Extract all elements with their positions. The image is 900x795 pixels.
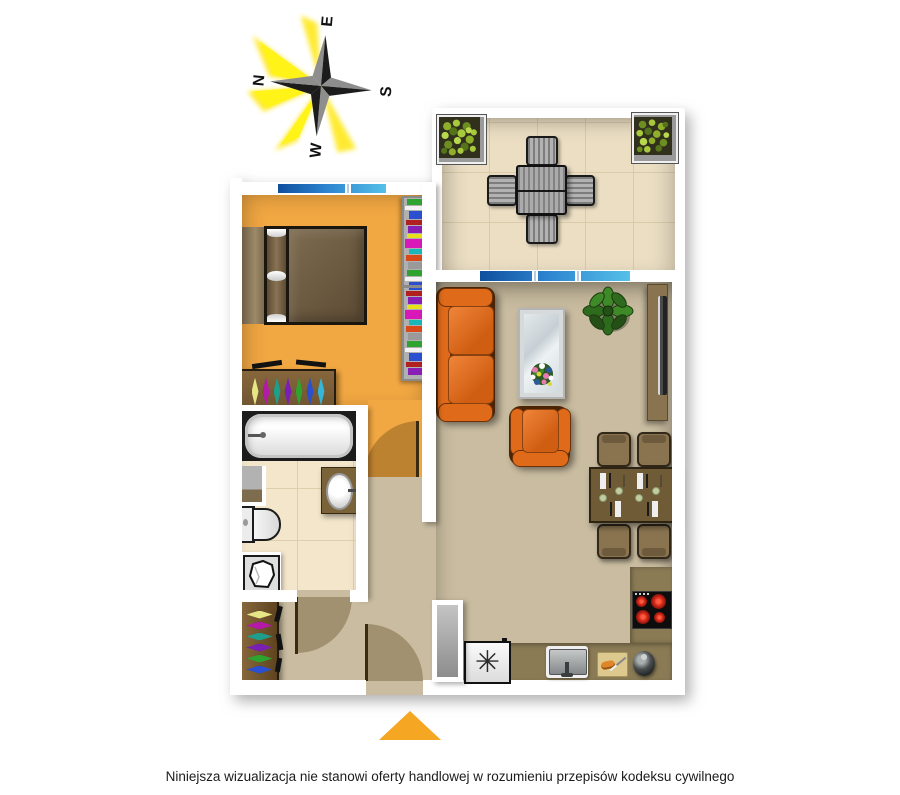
compass-star: N E S W [246,10,396,158]
bed [242,226,367,325]
clothes-hanger [247,611,273,619]
sink-vanity [321,467,360,514]
laundry-basket [240,552,281,595]
laundry-basket-inner [243,555,280,594]
cooktop-burner [636,610,650,624]
wall-right-outer [672,270,685,695]
dining-chair [637,524,671,559]
bed-headboard [242,227,264,324]
wall-bottom-left [230,680,366,695]
cooktop-controls [635,593,649,595]
window-divider [575,271,581,281]
sofa [436,287,495,421]
toilet-bowl [252,508,281,541]
wall-bathroom-right [356,405,368,597]
compass-label-east: E [319,15,337,27]
sofa-cushion [448,306,494,355]
pillow-cap [267,314,286,322]
cooktop-burner [654,612,665,623]
terrace-table [516,165,567,215]
sink-faucet-icon [561,673,573,677]
chair-back [642,548,666,556]
window-divider [532,271,538,281]
sofa-armrest [438,403,493,422]
dining-chair [597,524,631,559]
clothes-hanger [247,666,273,674]
pot [633,651,655,676]
bathroom-door [295,597,298,654]
hall-wardrobe [240,600,279,684]
pillow-cap [267,229,286,237]
terrace-planter-right [632,113,678,163]
wall-bathroom-bottom-right [350,590,368,602]
armchair-cushion [522,409,559,453]
toilet-button [243,519,248,526]
entrance-door [365,624,368,681]
cooktop-burner [651,594,666,609]
bush [439,117,480,158]
wall-bathroom-bottom-left [230,590,297,602]
bush [634,115,672,157]
clothes-hanger [247,644,273,652]
wall-left-outer [230,178,242,695]
wall-bottom-right [423,680,685,695]
cooktop [632,591,672,629]
bedroom-window [278,184,386,193]
compass-label-west: W [307,142,325,158]
laundry-icon [245,557,278,592]
cutting-board [597,652,628,677]
balcony-door-window [480,271,630,281]
chair-back [602,548,626,556]
tv-screen [658,296,667,395]
terrace-chair-left [487,175,517,206]
sofa-armrest [438,288,493,307]
chair-back [602,435,626,443]
dining-table [589,467,677,523]
clothes-hanger [247,655,273,663]
compass-label-south: S [378,86,396,98]
freezer: ✳ [464,641,511,684]
wall-entry-partition [432,600,463,682]
window-divider [345,184,351,193]
bed-frame [264,226,367,325]
dining-chair [597,432,631,467]
flower-bouquet [526,358,558,390]
terrace-chair-top [526,136,558,166]
bed-blanket [289,229,364,322]
pillow-cap [267,271,286,281]
clothes-hanger [296,378,303,406]
bathtub-faucet-icon [260,432,266,438]
pot-knob [641,654,647,660]
clothes-hanger [285,378,292,406]
freezer-pip [502,638,507,643]
terrace-planter-left [437,115,486,164]
cooktop-burner [636,596,647,607]
table-settings [591,469,675,521]
freezer-star-icon: ✳ [475,648,500,678]
disclaimer-text: Niniejsza wizualizacja nie stanowi ofert… [0,769,900,784]
clothes-hanger [247,622,273,630]
terrace-chair-bottom [526,214,558,244]
kitchen-sink [546,646,588,678]
entrance-arrow [379,711,441,740]
wall-bedroom-living [422,182,436,522]
compass-rose: N E S W [246,10,396,158]
toilet [240,506,281,541]
chair-back [642,435,666,443]
potted-plant [582,286,634,338]
coffee-table [518,308,565,399]
clothes-hanger [252,378,259,406]
clothes-hanger [263,378,270,406]
compass-label-north: N [250,74,268,87]
bathroom-niche [240,466,266,506]
partition-core [437,605,458,677]
clothes-hanger [307,378,314,406]
hanger-rail [242,602,277,682]
dining-chair [637,432,671,467]
bed-pillows [267,229,286,322]
terrace-chair-right [565,175,595,206]
floorplan: ✳ [0,0,900,795]
clothes-hanger [318,378,325,406]
clothes-hanger [247,633,273,641]
armchair [509,406,570,466]
sofa-cushion [448,355,494,404]
clothes-hanger [274,378,281,406]
bedroom-door [416,421,419,477]
bathtub [242,411,356,461]
